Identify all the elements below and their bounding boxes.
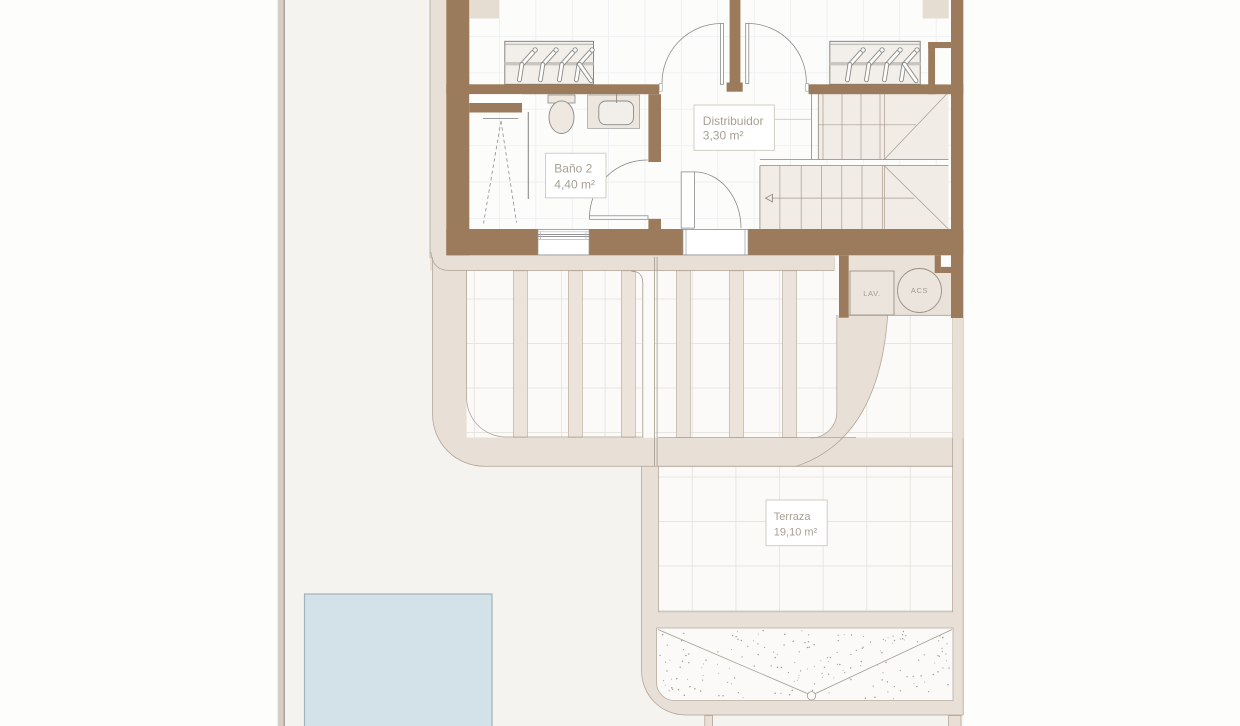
svg-text:3,30 m²: 3,30 m²	[703, 128, 744, 142]
svg-text:LAV.: LAV.	[863, 289, 880, 298]
svg-text:4,40 m²: 4,40 m²	[554, 178, 595, 192]
svg-text:Distribuidor: Distribuidor	[703, 114, 764, 128]
svg-text:ACS: ACS	[911, 286, 928, 295]
svg-text:Terraza: Terraza	[774, 511, 812, 523]
svg-text:Baño 2: Baño 2	[554, 161, 592, 175]
svg-text:19,10 m²: 19,10 m²	[774, 527, 818, 539]
